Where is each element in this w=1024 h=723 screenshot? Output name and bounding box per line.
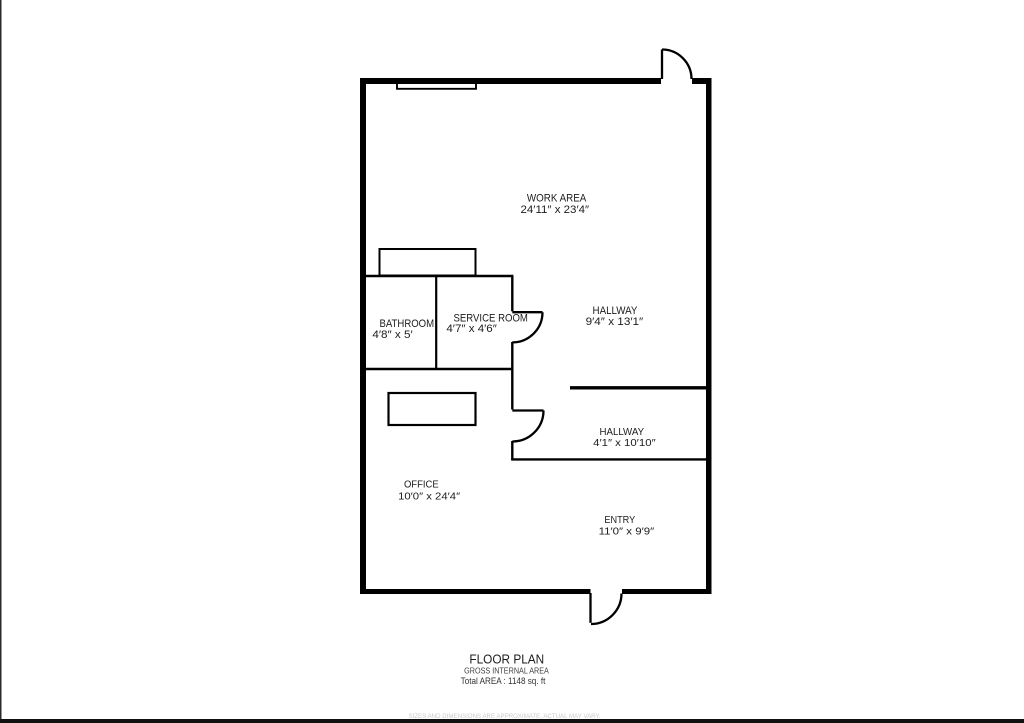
svg-text:GROSS INTERNAL AREA: GROSS INTERNAL AREA — [464, 667, 549, 676]
svg-text:9′4″ x 13′1″: 9′4″ x 13′1″ — [586, 316, 644, 328]
svg-text:24′11″ x 23′4″: 24′11″ x 23′4″ — [521, 204, 590, 216]
svg-text:OFFICE: OFFICE — [404, 480, 439, 491]
svg-text:FLOOR PLAN: FLOOR PLAN — [469, 651, 544, 666]
svg-text:4′7″ x 4′6″: 4′7″ x 4′6″ — [446, 323, 497, 335]
svg-text:ENTRY: ENTRY — [604, 515, 635, 526]
svg-text:Total AREA : 1148 sq. ft: Total AREA : 1148 sq. ft — [461, 676, 546, 686]
svg-text:11′0″ x 9′9″: 11′0″ x 9′9″ — [599, 526, 655, 537]
svg-text:10′0″ x 24′4″: 10′0″ x 24′4″ — [398, 491, 460, 502]
svg-text:4′1″ x 10′10″: 4′1″ x 10′10″ — [593, 438, 656, 449]
svg-text:WORK AREA: WORK AREA — [527, 193, 587, 205]
svg-text:HALLWAY: HALLWAY — [600, 427, 645, 438]
svg-text:4′8″ x 5′: 4′8″ x 5′ — [372, 329, 412, 341]
